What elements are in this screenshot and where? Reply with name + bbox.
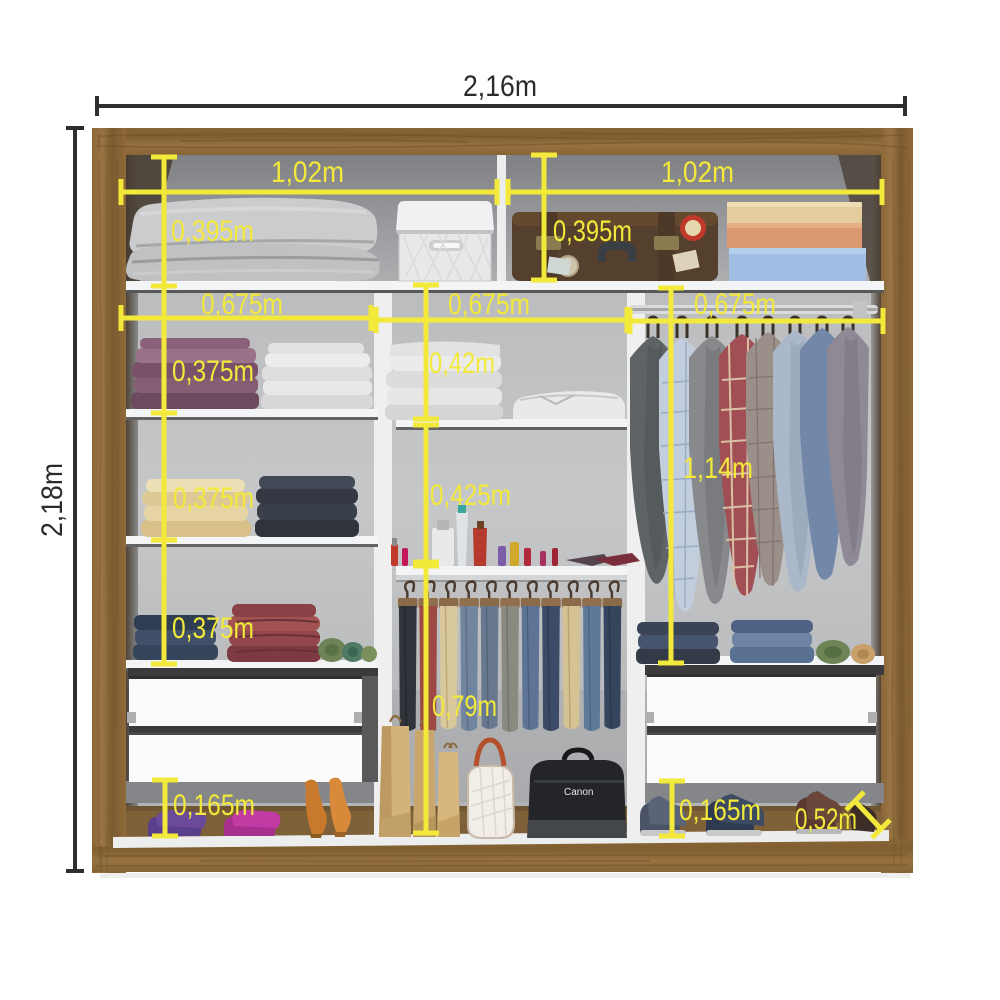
svg-text:0,375m: 0,375m — [172, 612, 254, 645]
svg-text:0,395m: 0,395m — [171, 215, 254, 248]
svg-text:0,165m: 0,165m — [679, 794, 761, 827]
svg-text:0,165m: 0,165m — [173, 789, 255, 822]
svg-text:0,675m: 0,675m — [694, 288, 776, 321]
svg-text:Canon: Canon — [564, 787, 593, 798]
svg-text:0,395m: 0,395m — [553, 215, 632, 248]
svg-text:0,375m: 0,375m — [172, 355, 254, 388]
svg-text:0,42m: 0,42m — [429, 347, 495, 380]
svg-text:2,18m: 2,18m — [36, 463, 69, 537]
svg-text:1,02m: 1,02m — [661, 156, 734, 189]
svg-text:1,14m: 1,14m — [683, 452, 753, 485]
svg-text:0,425m: 0,425m — [430, 479, 511, 512]
svg-text:0,675m: 0,675m — [448, 288, 530, 321]
svg-text:2,16m: 2,16m — [463, 70, 537, 103]
svg-text:1,02m: 1,02m — [271, 156, 344, 189]
svg-text:0,79m: 0,79m — [432, 690, 497, 723]
svg-text:0,375m: 0,375m — [173, 482, 254, 515]
svg-text:0,675m: 0,675m — [201, 288, 283, 321]
svg-text:0,52m: 0,52m — [795, 803, 857, 836]
